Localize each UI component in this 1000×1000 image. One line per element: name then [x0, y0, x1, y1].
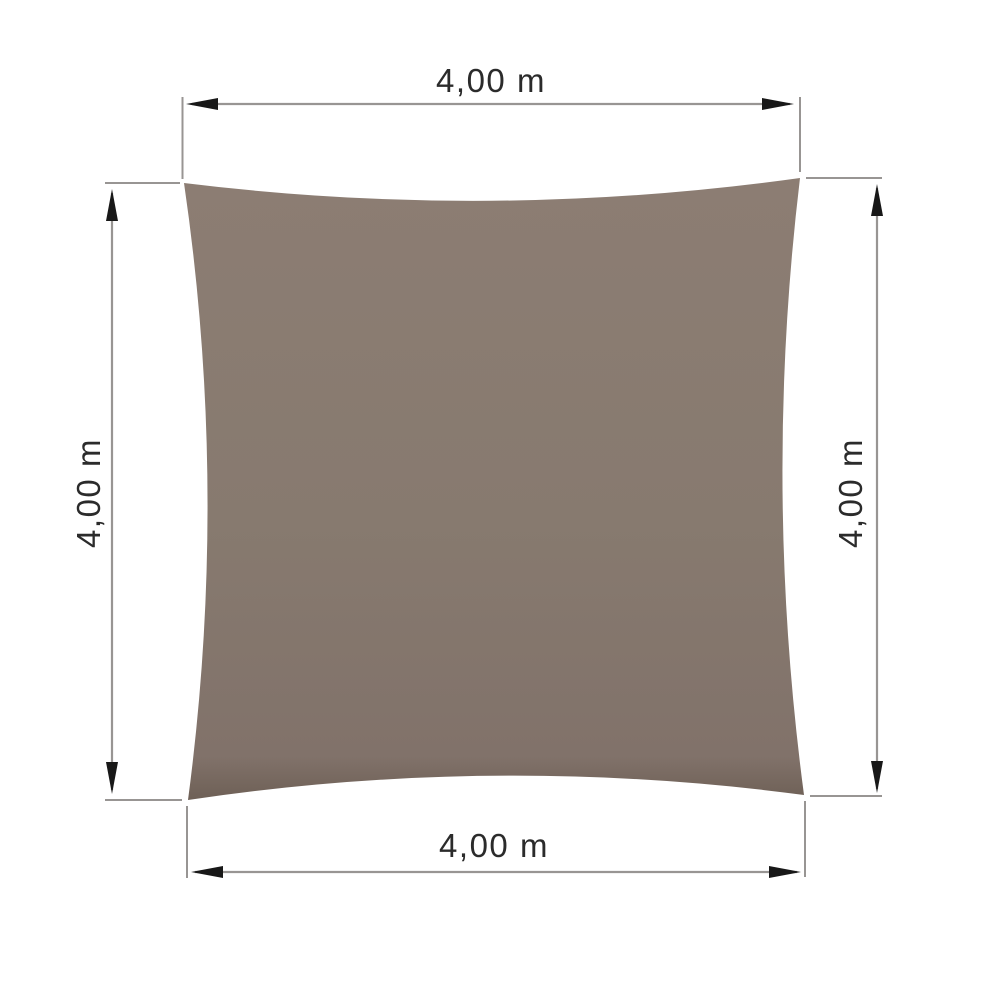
top-arrow-right-icon [762, 98, 794, 110]
bottom-arrow-right-icon [769, 866, 801, 878]
top-dimension-label: 4,00 m [436, 62, 546, 99]
bottom-dimension-label: 4,00 m [439, 827, 549, 864]
left-arrow-down-icon [106, 762, 118, 794]
right-dimension-label: 4,00 m [832, 438, 869, 548]
sail-shape [184, 178, 804, 800]
diagram-stage: 4,00 m 4,00 m 4,00 m 4,00 m [0, 0, 1000, 1000]
shade-sail-diagram: 4,00 m 4,00 m 4,00 m 4,00 m [0, 0, 1000, 1000]
right-arrow-down-icon [871, 761, 883, 793]
bottom-arrow-left-icon [191, 866, 223, 878]
left-arrow-up-icon [106, 189, 118, 221]
left-dimension-label: 4,00 m [70, 438, 107, 548]
right-arrow-up-icon [871, 184, 883, 216]
top-arrow-left-icon [186, 98, 218, 110]
